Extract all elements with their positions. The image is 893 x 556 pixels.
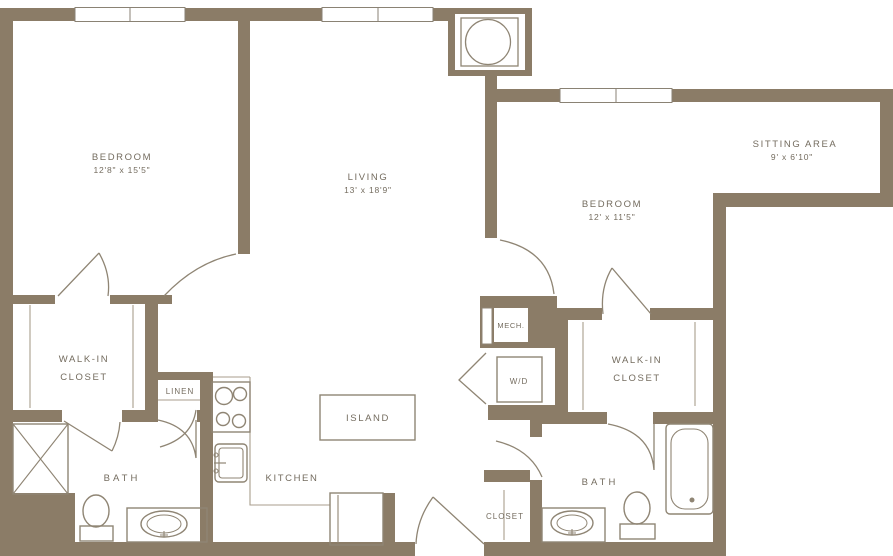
wall-entrycloset-right [530,480,542,556]
label-closet2-line2: CLOSET [613,373,661,384]
wall-bath2-top-a [530,412,607,424]
toilet-right-symbol [620,492,655,539]
floorplan-canvas: BEDROOM 12'8" x 15'5" LIVING 13' x 18'9"… [0,0,893,556]
wall-right-lower [713,193,726,556]
wall-closet2-top-b [650,308,713,320]
label-bedroom2-name: BEDROOM [582,199,642,210]
label-wd: W/D [510,377,529,386]
window-bedroom1-b [130,8,185,22]
wall-bedroom1-bottom-b [110,295,172,304]
wall-bedroom1-living [238,8,250,254]
shower-symbol [13,424,68,494]
label-bedroom1-dims: 12'8" x 15'5" [93,165,150,175]
label-closet1-line1: WALK-IN [59,354,109,365]
wall-bath1-top-a [13,410,62,422]
window-living-b [378,8,433,22]
wall-sitting-bottom [713,193,893,207]
window-bedroom2-a [560,89,616,103]
kitchen-counter-line [213,377,330,505]
label-kitchen: KITCHEN [266,473,319,484]
wall-closet2-top-a [557,308,602,320]
wall-bottom-b [484,542,726,556]
vanity-left-symbol [127,508,207,542]
door-bedroom1 [164,254,236,296]
window-living-a [322,8,378,22]
door-wd-bifold [459,353,486,404]
windows [75,8,672,103]
wall-top-right [495,89,893,102]
closet2-shelf-lines [583,322,695,410]
wall-closet1-right [145,295,158,420]
mech-door [482,308,492,344]
wall-bottom-a [0,542,415,556]
wall-left [0,8,13,556]
wall-bedroom1-bottom-a [13,295,55,304]
floorplan-page: BEDROOM 12'8" x 15'5" LIVING 13' x 18'9"… [0,0,893,556]
wall-bath2-top-b [653,412,713,424]
label-linen: LINEN [166,387,195,396]
label-entry-closet: CLOSET [486,512,524,521]
fixtures [13,357,713,545]
vanity-right-symbol [542,508,605,542]
label-mech: MECH. [497,321,524,330]
label-closet1-line2: CLOSET [60,372,108,383]
door-bath1-a [64,421,120,451]
label-sitting-name: SITTING AREA [753,139,838,150]
window-bedroom1-a [75,8,130,22]
fridge-symbol [330,493,383,545]
label-sitting-dims: 9' x 6'10" [771,152,813,162]
door-bedroom2 [500,240,554,294]
window-bedroom2-b [616,89,672,103]
label-living-dims: 13' x 18'9" [344,185,392,195]
label-bedroom1-name: BEDROOM [92,152,152,163]
label-bath1: BATH [104,473,141,484]
wall-fridge-right [383,493,395,547]
label-bedroom2-dims: 12' x 11'5" [588,212,635,222]
shaft [455,14,525,70]
wall-hall-bath2-stub [530,424,542,437]
door-entry [416,497,484,544]
door-closet1 [58,253,109,296]
wall-bath1-top-b [122,410,158,422]
door-closet2 [602,268,651,314]
bathtub-symbol [666,424,713,514]
wall-living-bedroom2 [485,75,497,238]
label-living-name: LIVING [348,172,389,183]
kitchen-sink-symbol [214,444,247,482]
stove-symbol [212,382,250,432]
wall-closet2-left [555,308,568,412]
wall-right-upper [880,89,893,207]
wall-bath1-top-c [197,410,213,422]
toilet-left-symbol [80,495,113,541]
label-closet2-line1: WALK-IN [612,355,662,366]
label-island: ISLAND [346,413,390,424]
wall-entrycloset-top [484,470,530,482]
door-bath2 [608,424,654,470]
label-bath2: BATH [582,477,619,488]
